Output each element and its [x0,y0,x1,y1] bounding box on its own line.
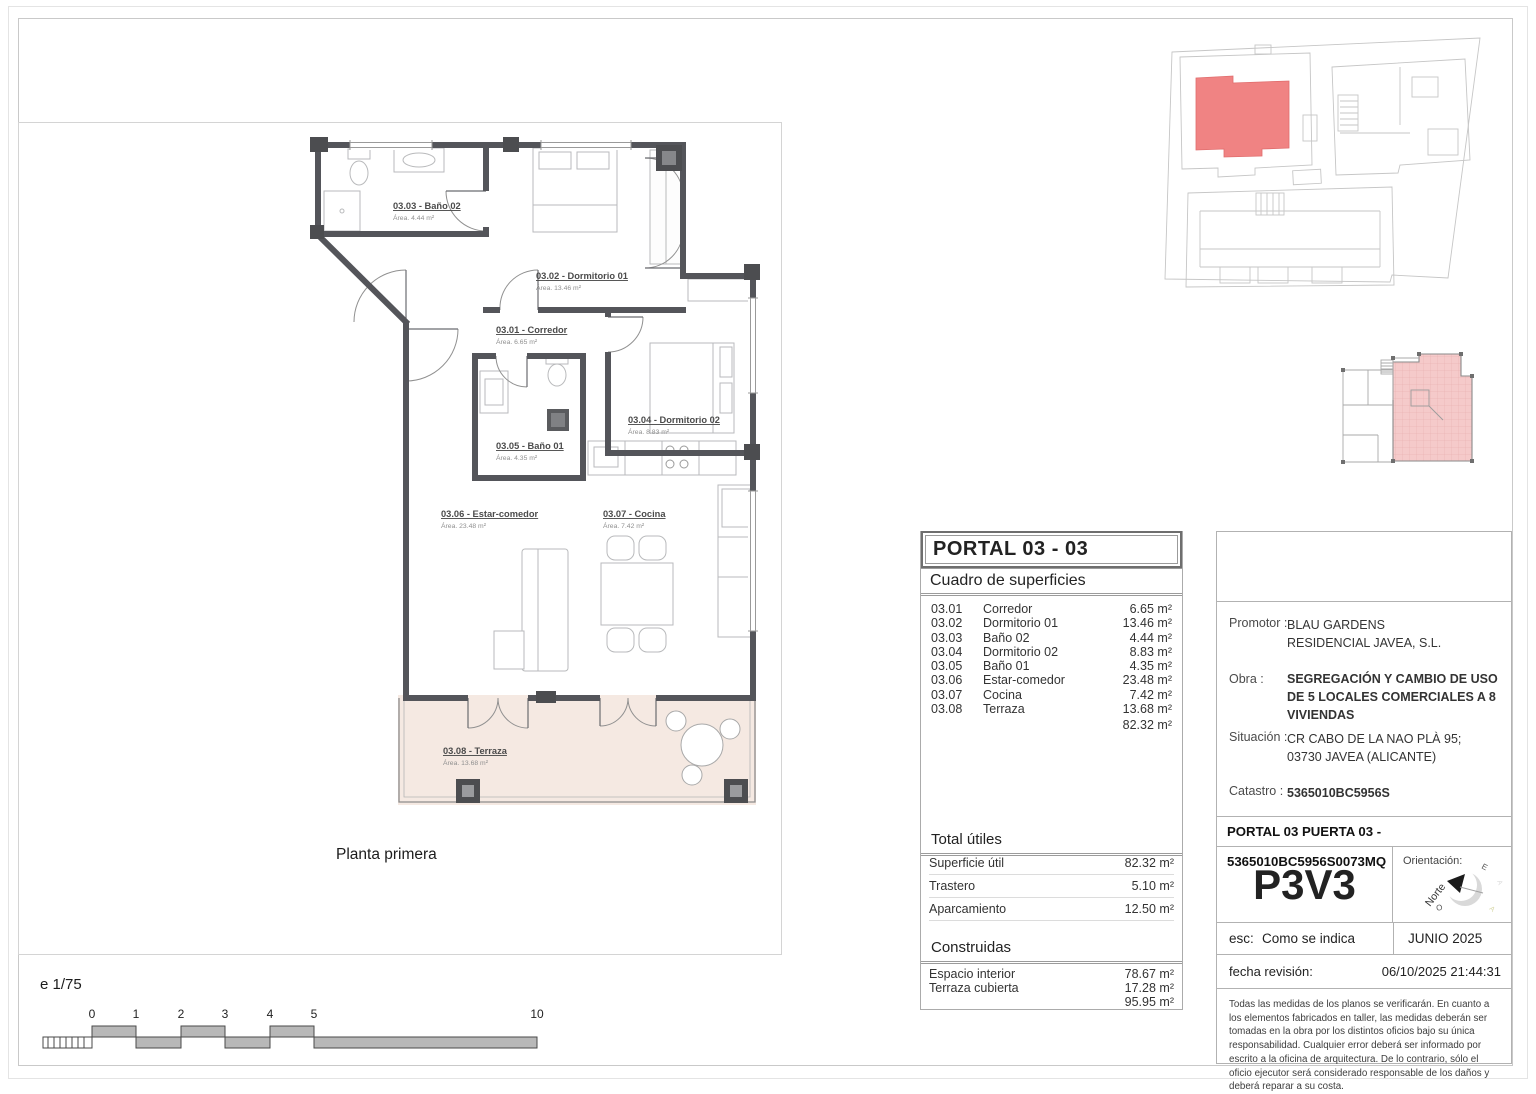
row-code: 03.02 [931,616,983,630]
key-site-plan [1160,35,1490,305]
building-b-outline [1332,59,1470,175]
row-code: 03.07 [931,688,983,702]
table-row: 03.02Dormitorio 0113.46 m² [931,616,1172,630]
title-block-empty-box [1217,532,1511,601]
highlight-unit-border [1393,354,1472,461]
room-area-bano02: Área. 4.44 m² [393,213,435,222]
row-label: Terraza cubierta [929,981,1102,995]
room-label-terraza: 03.08 - Terraza [443,746,508,756]
room-label-bano02: 03.03 - Baño 02 [393,201,461,211]
compass-o-label: O [1435,903,1443,913]
surfaces-panel: PORTAL 03 - 03 Cuadro de superficies 03.… [920,531,1183,1010]
svg-text:1: 1 [133,1007,140,1021]
row-value: 82.32 m² [1102,853,1174,874]
table-row: 03.03Baño 024.44 m² [931,631,1172,645]
row-value: 13.46 m² [1100,616,1172,630]
utiles-row: Trastero5.10 m² [929,876,1174,898]
built-total-row: 95.95 m² [929,995,1174,1009]
table-row: 03.08Terraza13.68 m² [931,702,1172,716]
room-area-corredor: Área. 6.65 m² [496,337,538,346]
row-label: Corredor [983,602,1100,616]
table-row: 03.06Estar-comedor23.48 m² [931,673,1172,687]
row-value: 17.28 m² [1102,981,1174,995]
bed-double-icon [533,148,617,232]
table-row: 03.01Corredor6.65 m² [931,602,1172,616]
row-label: Dormitorio 02 [983,645,1100,659]
row-value: 7.42 m² [1100,688,1172,702]
surfaces-title: PORTAL 03 - 03 [925,535,1178,564]
revision-value: 06/10/2025 21:44:31 [1382,955,1501,989]
unit-code-row: P3V3 Orientación: Norte E O A A [1217,846,1511,922]
work-label: Obra : [1229,672,1264,686]
room-area-terraza: Área. 13.68 m² [443,758,489,767]
built-total: 95.95 m² [1102,995,1174,1009]
row-code: 03.03 [931,631,983,645]
scale-bar-segments [43,1026,537,1048]
row-code: 03.05 [931,659,983,673]
parcel-boundary [1165,38,1480,282]
room-label-bano01: 03.05 - Baño 01 [496,441,564,451]
row-value: 5.10 m² [1102,876,1174,897]
row-label: Dormitorio 01 [983,616,1100,630]
spacer [929,995,1102,1009]
room-area-estar: Área. 23.48 m² [441,521,487,530]
furniture [324,148,754,785]
unit-code: P3V3 [1217,847,1393,923]
row-label: Trastero [929,876,1102,897]
room-label-estar: 03.06 - Estar-comedor [441,509,539,519]
shower-icon [324,191,360,231]
scale-caption: e 1/75 [40,976,82,993]
sofa-icon [494,549,568,671]
building-c-outline [1186,187,1394,287]
svg-text:0: 0 [89,1007,96,1021]
disclaimer-box: Todas las medidas de los planos se verif… [1217,988,1511,1063]
surfaces-title-box: PORTAL 03 - 03 [921,531,1182,568]
scale-label: esc: [1229,923,1254,955]
row-value: 4.35 m² [1100,659,1172,673]
svg-text:10: 10 [530,1007,544,1021]
table-row: 03.05Baño 014.35 m² [931,659,1172,673]
row-label: Baño 02 [983,631,1100,645]
row-label: Espacio interior [929,967,1102,981]
room-label-dorm02: 03.04 - Dormitorio 02 [628,415,720,425]
key-floor-plan [1333,350,1481,478]
bath1-toilet-icon [546,355,568,386]
row-label: Superficie útil [929,853,1102,874]
built-row: Espacio interior78.67 m² [929,967,1174,981]
utiles-row: Superficie útil82.32 m² [929,853,1174,875]
wardrobe2-icon [688,279,752,301]
surfaces-total: 82.32 m² [1123,718,1172,732]
scale-bar-ticks: 0 1 2 3 4 5 10 [89,1007,544,1021]
row-code: 03.04 [931,645,983,659]
cadastre-label: Catastro : [1229,784,1283,798]
compass-faint-label: A [1495,879,1503,886]
revision-row: fecha revisión: 06/10/2025 21:44:31 [1217,954,1511,988]
built-row: Terraza cubierta17.28 m² [929,981,1174,995]
living-door-arc [406,329,458,381]
dining-table-icon [601,536,673,652]
dorm1-door-arc [500,270,538,310]
table-row: 03.04Dormitorio 028.83 m² [931,645,1172,659]
compass-icon: Norte E O A A [1397,853,1509,921]
svg-text:2: 2 [178,1007,185,1021]
date-cell: JUNIO 2025 [1393,923,1511,954]
utiles-title: Total útiles [921,827,1182,856]
scale-row: esc: Como se indica JUNIO 2025 [1217,922,1511,954]
row-value: 13.68 m² [1100,702,1172,716]
room-label-corredor: 03.01 - Corredor [496,325,568,335]
row-label: Estar-comedor [983,673,1100,687]
floor-plan: 03.03 - Baño 02 Área. 4.44 m² 03.02 - Do… [298,133,776,815]
row-code: 03.01 [931,602,983,616]
svg-text:3: 3 [222,1007,229,1021]
location-value: CR CABO DE LA NAO PLÀ 95; 03730 JAVEA (A… [1287,730,1467,766]
room-area-dorm01: Área. 13.46 m² [536,283,582,292]
row-value: 6.65 m² [1100,602,1172,616]
project-info-box: Promotor : BLAU GARDENS RESIDENCIAL JAVE… [1217,601,1511,816]
room-area-dorm02: Área. 8.83 m² [628,427,670,436]
room-labels: 03.03 - Baño 02 Área. 4.44 m² 03.02 - Do… [393,201,720,767]
toilet-icon [348,149,370,185]
row-value: 23.48 m² [1100,673,1172,687]
row-code: 03.08 [931,702,983,716]
washer-icon [547,409,569,431]
plan-caption: Planta primera [336,846,437,864]
promoter-value: BLAU GARDENS RESIDENCIAL JAVEA, S.L. [1287,616,1447,652]
svg-text:5: 5 [311,1007,318,1021]
surfaces-rows: 03.01Corredor6.65 m² 03.02Dormitorio 011… [921,602,1182,716]
room-area-cocina: Área. 7.42 m² [603,521,645,530]
compass-faint-label: A [1488,905,1496,914]
row-label: Cocina [983,688,1100,702]
row-value: 78.67 m² [1102,967,1174,981]
title-block: Promotor : BLAU GARDENS RESIDENCIAL JAVE… [1216,531,1512,1064]
unit-reference-line: PORTAL 03 PUERTA 03 - 5365010BC5956S0073… [1217,816,1511,846]
row-value: 4.44 m² [1100,631,1172,645]
sink-icon [394,148,444,172]
location-label: Situación : [1229,730,1287,744]
room-area-bano01: Área. 4.35 m² [496,453,538,462]
built-title: Construidas [921,935,1182,964]
row-code: 03.06 [931,673,983,687]
utiles-row: Aparcamiento12.50 m² [929,899,1174,921]
dorm2-door-arc [608,317,643,352]
surfaces-subtitle: Cuadro de superficies [921,568,1182,596]
promoter-label: Promotor : [1229,616,1287,630]
row-label: Aparcamiento [929,899,1102,920]
room-label-cocina: 03.07 - Cocina [603,509,666,519]
scale-bar: 0 1 2 3 4 5 10 [30,1000,590,1056]
scale-value: Como se indica [1262,923,1355,955]
svg-text:4: 4 [267,1007,274,1021]
room-label-dorm01: 03.02 - Dormitorio 01 [536,271,628,281]
table-row: 03.07Cocina7.42 m² [931,688,1172,702]
row-label: Terraza [983,702,1100,716]
cadastre-value: 5365010BC5956S [1287,784,1503,802]
bath2-door-arc [446,191,486,231]
work-value: SEGREGACIÓN Y CAMBIO DE USO DE 5 LOCALES… [1287,670,1503,724]
highlight-unit-red [1196,76,1289,157]
revision-label: fecha revisión: [1229,955,1313,989]
compass-e-label: E [1480,862,1489,872]
row-value: 8.83 m² [1100,645,1172,659]
row-label: Baño 01 [983,659,1100,673]
row-value: 12.50 m² [1102,899,1174,920]
